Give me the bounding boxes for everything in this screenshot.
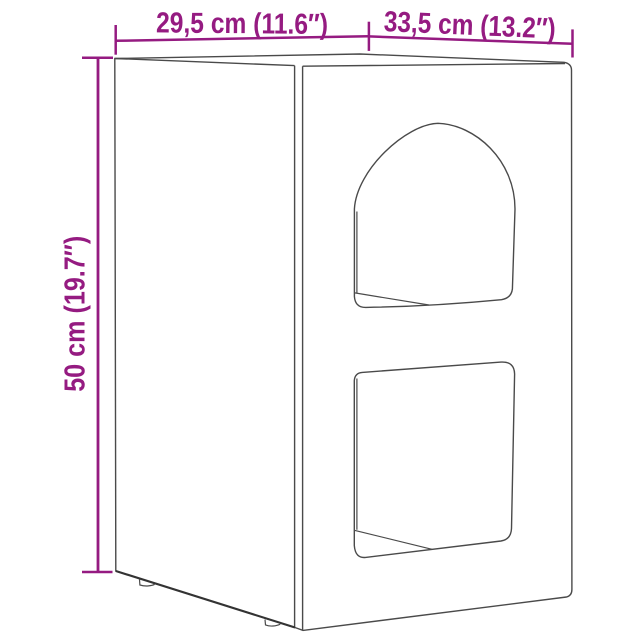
- svg-text:29,5 cm (11.6″): 29,5 cm (11.6″): [156, 7, 328, 40]
- svg-text:33,5 cm (13.2″): 33,5 cm (13.2″): [383, 6, 556, 45]
- svg-text:50 cm (19.7″): 50 cm (19.7″): [60, 236, 92, 392]
